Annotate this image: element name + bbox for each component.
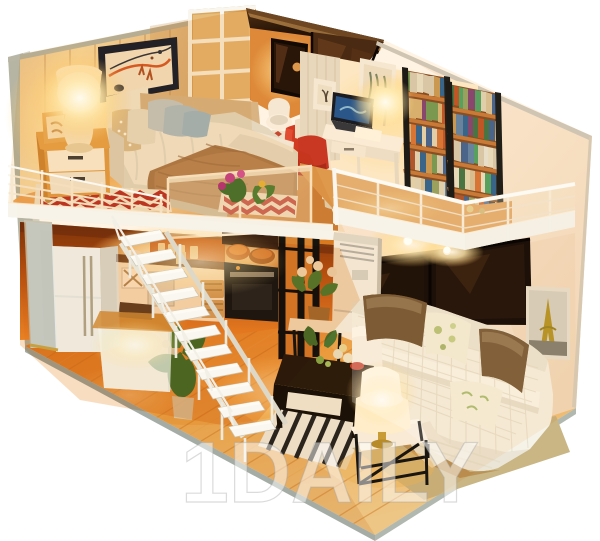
svg-text:1DAILY: 1DAILY [181, 425, 479, 521]
